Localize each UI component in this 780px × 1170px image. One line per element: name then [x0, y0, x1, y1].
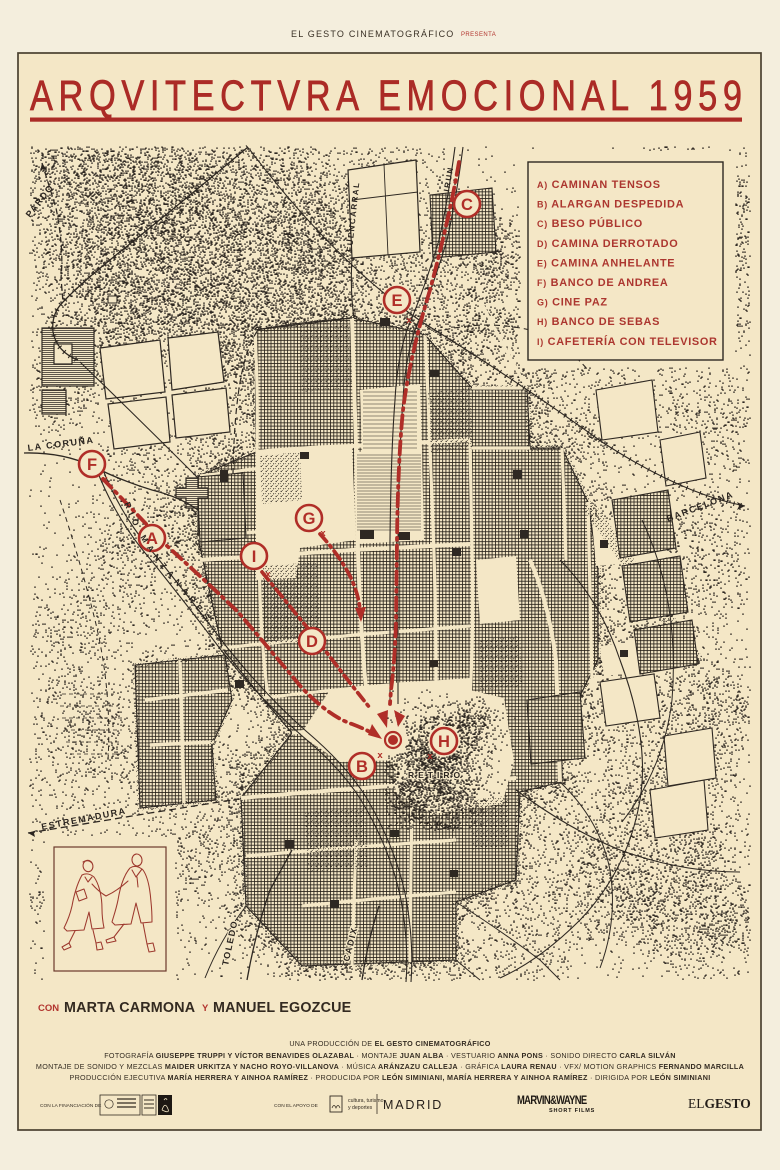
svg-text:CON: CON — [38, 1003, 59, 1014]
svg-text:ARQVITECTVRA EMOCIONAL 1959: ARQVITECTVRA EMOCIONAL 1959 — [30, 72, 742, 119]
svg-text:B) ALARGAN DESPEDIDA: B) ALARGAN DESPEDIDA — [537, 199, 684, 211]
svg-text:E: E — [391, 292, 402, 310]
svg-text:RETIRO: RETIRO — [408, 770, 464, 780]
svg-text:C: C — [461, 196, 473, 214]
svg-text:x: x — [406, 315, 412, 326]
svg-text:Y: Y — [202, 1003, 209, 1014]
svg-text:SHORT FILMS: SHORT FILMS — [549, 1108, 595, 1114]
svg-text:A) CAMINAN TENSOS: A) CAMINAN TENSOS — [537, 179, 661, 191]
svg-text:F) BANCO DE ANDREA: F) BANCO DE ANDREA — [537, 277, 668, 289]
svg-text:x: x — [446, 212, 452, 223]
svg-text:B: B — [356, 758, 368, 776]
svg-text:x: x — [427, 751, 433, 762]
svg-text:EL GESTO CINEMATOGRÁFICO: EL GESTO CINEMATOGRÁFICO — [291, 29, 455, 39]
svg-text:ELGESTO: ELGESTO — [688, 1096, 751, 1111]
svg-text:FOTOGRAFÍA GIUSEPPE TRUPPI Y V: FOTOGRAFÍA GIUSEPPE TRUPPI Y VÍCTOR BENA… — [104, 1051, 676, 1060]
svg-text:cultura, turismo: cultura, turismo — [348, 1098, 384, 1104]
svg-text:D: D — [306, 633, 318, 651]
svg-text:H: H — [438, 733, 450, 751]
svg-text:H) BANCO DE SEBAS: H) BANCO DE SEBAS — [537, 316, 660, 328]
svg-text:MARVIN&WAYNE: MARVIN&WAYNE — [517, 1094, 587, 1107]
svg-text:CON EL APOYO DE: CON EL APOYO DE — [274, 1103, 318, 1109]
svg-text:I) CAFETERÍA CON TELEVISOR: I) CAFETERÍA CON TELEVISOR — [537, 335, 718, 348]
svg-text:I: I — [252, 548, 257, 566]
svg-text:PRESENTA: PRESENTA — [461, 32, 496, 38]
svg-text:x: x — [265, 569, 271, 580]
svg-text:x: x — [320, 528, 326, 539]
svg-text:y deportes: y deportes — [348, 1105, 373, 1111]
svg-text:x: x — [102, 474, 108, 485]
svg-text:G) CINE PAZ: G) CINE PAZ — [537, 297, 608, 309]
svg-text:G: G — [303, 510, 316, 528]
svg-text:PRODUCCIÓN EJECUTIVA MARÍA HER: PRODUCCIÓN EJECUTIVA MARÍA HERRERA Y AIN… — [69, 1073, 710, 1082]
svg-text:E) CAMINA ANHELANTE: E) CAMINA ANHELANTE — [537, 257, 675, 269]
svg-text:UNA PRODUCCIÓN DE EL GESTO CIN: UNA PRODUCCIÓN DE EL GESTO CINEMATOGRÁFI… — [289, 1039, 490, 1048]
svg-text:MADRID: MADRID — [383, 1098, 443, 1112]
svg-text:CON LA FINANCIACIÓN DE: CON LA FINANCIACIÓN DE — [40, 1102, 101, 1109]
svg-text:MARTA CARMONA: MARTA CARMONA — [64, 1000, 195, 1016]
svg-text:F: F — [87, 456, 97, 474]
svg-text:D) CAMINA DERROTADO: D) CAMINA DERROTADO — [537, 238, 678, 250]
svg-text:MONTAJE DE SONIDO Y MEZCLAS MA: MONTAJE DE SONIDO Y MEZCLAS MAIDER URKIT… — [36, 1062, 744, 1071]
svg-text:MANUEL EGOZCUE: MANUEL EGOZCUE — [213, 1000, 351, 1016]
svg-text:C) BESO PÚBLICO: C) BESO PÚBLICO — [537, 217, 643, 230]
svg-text:x: x — [377, 750, 383, 761]
